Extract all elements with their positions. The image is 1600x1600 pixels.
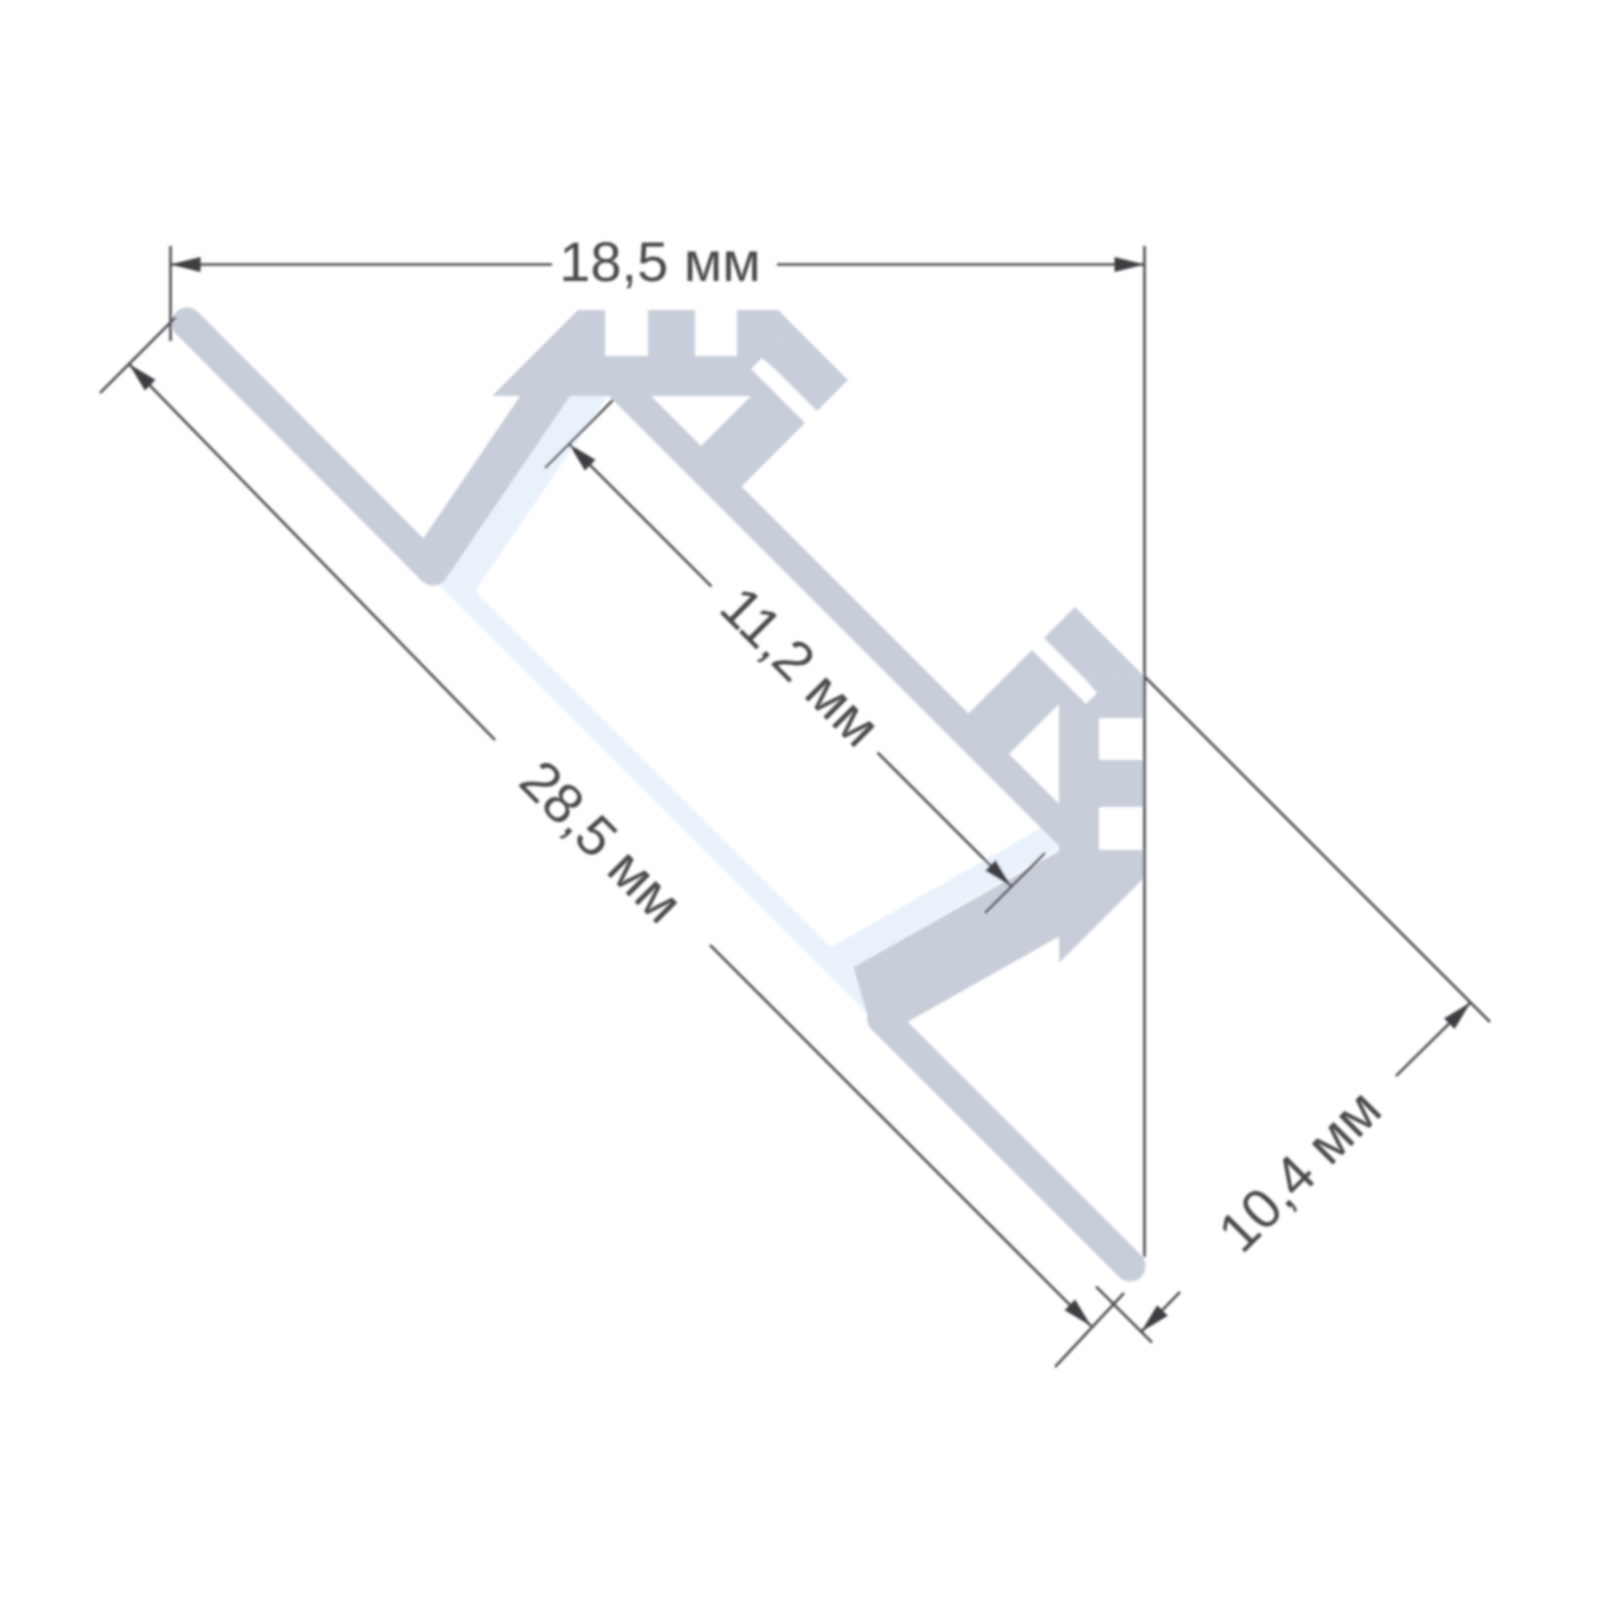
svg-text:18,5 мм: 18,5 мм [559,230,761,293]
